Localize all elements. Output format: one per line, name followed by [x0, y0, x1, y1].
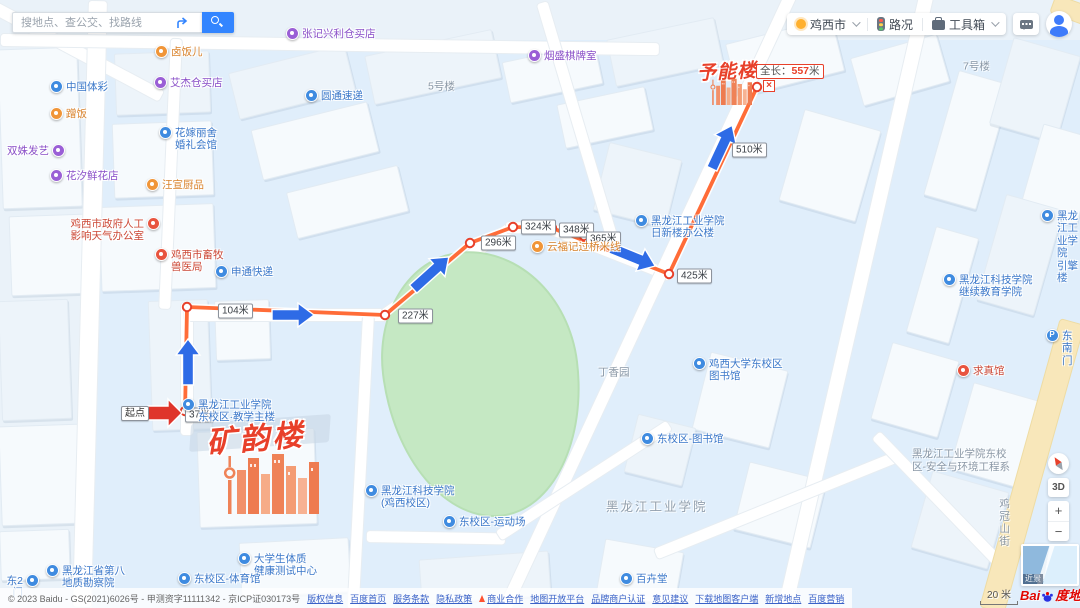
- poi-pin-icon: [155, 248, 168, 261]
- chevron-down-icon: [991, 18, 999, 26]
- flame-icon: [479, 595, 485, 602]
- poi-label: 东校区-运动场: [459, 515, 526, 528]
- poi-marker[interactable]: 双姝发艺: [7, 144, 65, 157]
- poi-label: 东校区-图书馆: [657, 432, 724, 445]
- poi-label: 花嫁丽舍 婚礼会馆: [175, 126, 217, 152]
- poi-label: 东校区-体育馆: [194, 572, 261, 585]
- destination-skyline-illustration: [703, 77, 759, 105]
- poi-pin-icon: [528, 49, 541, 62]
- feedback-button[interactable]: [1013, 13, 1039, 35]
- poi-marker[interactable]: 张记兴利仓买店: [286, 27, 376, 40]
- zoom-controls: + −: [1048, 501, 1069, 541]
- footer-link[interactable]: 百度首页: [350, 592, 386, 605]
- 3d-toggle[interactable]: 3D: [1048, 478, 1069, 497]
- zoom-in-button[interactable]: +: [1048, 501, 1069, 522]
- poi-label: 求真馆: [973, 364, 1005, 377]
- footer-link[interactable]: 版权信息: [307, 592, 343, 605]
- city-label: 鸡西市: [810, 16, 846, 33]
- poi-pin-icon: [215, 265, 228, 278]
- poi-marker[interactable]: 黑龙江工业学院 引擎楼: [1041, 209, 1080, 284]
- road: [183, 308, 388, 322]
- poi-marker[interactable]: 黑龙江科技学院 继续教育学院: [943, 273, 1033, 299]
- poi-label: 鸡西市政府人工 影响天气办公室: [71, 217, 145, 243]
- poi-marker[interactable]: 东校区-运动场: [443, 515, 526, 528]
- compass-control[interactable]: [1048, 453, 1069, 474]
- poi-marker[interactable]: 卤饭儿: [155, 45, 203, 58]
- route-distance-label: 425米: [677, 269, 712, 284]
- search-input[interactable]: [12, 12, 202, 33]
- poi-label: 大学生体质 健康测试中心: [254, 552, 317, 578]
- weather-icon: [796, 19, 806, 29]
- traffic-toggle[interactable]: 路况: [868, 13, 922, 35]
- total-prefix: 全长：: [760, 65, 792, 77]
- footer-link[interactable]: 服务条款: [393, 592, 429, 605]
- poi-label: 云福记过桥米线: [547, 240, 621, 253]
- poi-label: 申通快递: [231, 265, 273, 278]
- poi-label: 黑龙江省第八 地质勘察院: [62, 564, 125, 590]
- poi-marker[interactable]: 鸡西市政府人工 影响天气办公室: [71, 217, 161, 243]
- route-distance-label: 296米: [481, 236, 516, 251]
- poi-label: 东南门: [1062, 329, 1080, 367]
- poi-pin-icon: [531, 240, 544, 253]
- poi-label: 花汐鲜花店: [66, 169, 119, 182]
- chevron-down-icon: [852, 18, 860, 26]
- poi-label: 黑龙江科技学院 (鸡西校区): [381, 484, 455, 510]
- logo-bai: Bai: [1020, 588, 1040, 604]
- poi-pin-icon: [154, 76, 167, 89]
- route-distance-label: 227米: [398, 309, 433, 324]
- user-avatar[interactable]: [1046, 11, 1072, 37]
- poi-label: 卤饭儿: [171, 45, 203, 58]
- poi-label: 艾杰仓买店: [170, 76, 223, 89]
- poi-marker[interactable]: 百卉堂: [620, 572, 668, 585]
- poi-marker[interactable]: 花汐鲜花店: [50, 169, 119, 182]
- road: [366, 530, 506, 545]
- poi-marker[interactable]: 东校区-体育馆: [178, 572, 261, 585]
- map-canvas[interactable]: 矿韵楼 予能楼 全长：557米 × 起点 鸡西市 路况: [0, 0, 1080, 608]
- poi-marker[interactable]: 求真馆: [957, 364, 1005, 377]
- poi-pin-icon: [943, 273, 956, 286]
- poi-pin-icon: [178, 572, 191, 585]
- toolbar-pill: 鸡西市 路况 工具箱: [787, 13, 1006, 35]
- poi-label: 黑龙江工业学院 引擎楼: [1057, 209, 1080, 284]
- route-total-badge: 全长：557米: [756, 64, 824, 79]
- person-icon: [1054, 15, 1064, 25]
- poi-label: 中国体彩: [66, 80, 108, 93]
- poi-pin-icon: [50, 107, 63, 120]
- area-label: 黑龙江工业学院: [606, 500, 708, 516]
- poi-pin-icon: [52, 144, 65, 157]
- minimap-label: 近景: [1023, 574, 1043, 584]
- origin-skyline-illustration: [221, 450, 321, 514]
- minimap-thumbnail[interactable]: 近景: [1021, 544, 1079, 586]
- search-bar: [12, 12, 234, 33]
- building-block: [0, 299, 72, 421]
- poi-marker[interactable]: 鸡西大学东校区 图书馆: [693, 357, 783, 383]
- scale-line: [980, 601, 1018, 605]
- area-label: 黑龙江工业学院东校 区-安全与环境工程系: [912, 448, 1010, 474]
- search-button[interactable]: [202, 12, 234, 33]
- poi-marker[interactable]: 云福记过桥米线: [531, 240, 621, 253]
- building-block: [0, 47, 83, 210]
- poi-pin-icon: [305, 89, 318, 102]
- route-start-badge: 起点: [121, 406, 149, 421]
- logo-suffix: 度地图: [1055, 588, 1080, 604]
- poi-pin-icon: [620, 572, 633, 585]
- poi-marker[interactable]: 东校区-图书馆: [641, 432, 724, 445]
- copyright-text: © 2023 Baidu - GS(2021)6026号 - 甲测资字11111…: [8, 592, 300, 605]
- route-distance-label: 510米: [732, 143, 767, 158]
- toolbox-label: 工具箱: [949, 16, 985, 33]
- poi-pin-icon: [46, 564, 59, 577]
- poi-pin-icon: [159, 126, 172, 139]
- poi-marker[interactable]: 蹭饭: [50, 107, 87, 120]
- poi-pin-icon: [50, 80, 63, 93]
- poi-label: 烟盛棋牌室: [544, 49, 597, 62]
- close-icon[interactable]: ×: [763, 80, 775, 92]
- search-icon: [211, 16, 219, 24]
- poi-label: 蹭饭: [66, 107, 87, 120]
- poi-pin-icon: [635, 214, 648, 227]
- poi-pin-icon: [443, 515, 456, 528]
- total-value: 557: [792, 65, 810, 77]
- poi-marker[interactable]: P东南门: [1046, 329, 1080, 367]
- poi-pin-icon: [693, 357, 706, 370]
- poi-marker[interactable]: 圆通速递: [305, 89, 363, 102]
- paw-icon: [1041, 590, 1054, 603]
- poi-marker[interactable]: 汪宣厨品: [146, 178, 204, 191]
- route-distance-label: 324米: [521, 220, 556, 235]
- poi-pin-icon: [147, 217, 160, 230]
- building-block: [0, 424, 82, 527]
- poi-marker[interactable]: 黑龙江省第八 地质勘察院: [46, 564, 125, 590]
- scale-label: 20 米: [987, 590, 1011, 601]
- poi-marker[interactable]: 花嫁丽舍 婚礼会馆: [159, 126, 217, 152]
- toolbar: 鸡西市 路况 工具箱: [787, 11, 1072, 37]
- poi-label: 黑龙江科技学院 继续教育学院: [959, 273, 1033, 299]
- poi-marker[interactable]: 烟盛棋牌室: [528, 49, 597, 62]
- poi-marker[interactable]: 艾杰仓买店: [154, 76, 223, 89]
- poi-label: 双姝发艺: [7, 144, 49, 157]
- route-distance-label: 104米: [218, 304, 253, 319]
- toolbox-menu[interactable]: 工具箱: [923, 13, 1006, 35]
- footer-link[interactable]: 隐私政策: [436, 592, 472, 605]
- poi-pin-icon: [957, 364, 970, 377]
- poi-pin-icon: [1041, 209, 1054, 222]
- total-unit: 米: [809, 65, 820, 77]
- message-icon: [1020, 20, 1033, 29]
- poi-label: 圆通速递: [321, 89, 363, 102]
- poi-pin-icon: [26, 574, 39, 587]
- footer-link[interactable]: 商业合作: [479, 592, 523, 605]
- poi-marker[interactable]: 黑龙江工业学院 日新楼办公楼: [635, 214, 725, 240]
- traffic-light-icon: [877, 17, 885, 31]
- toolbox-icon: [932, 20, 945, 30]
- footer-link[interactable]: 地图开放平台: [530, 592, 584, 605]
- directions-icon[interactable]: [176, 16, 190, 30]
- scale-bar: 20 米: [980, 586, 1018, 605]
- poi-marker[interactable]: 中国体彩: [50, 80, 108, 93]
- zoom-out-button[interactable]: −: [1048, 522, 1069, 542]
- area-label: 7号楼: [963, 60, 990, 73]
- footer-link[interactable]: 意见建议: [652, 592, 688, 605]
- area-label: 鸡冠山街: [997, 498, 1010, 548]
- poi-pin-icon: [155, 45, 168, 58]
- area-label: 丁香园: [598, 366, 630, 379]
- gate-icon: P: [1046, 329, 1059, 342]
- footer-link[interactable]: 百度营销: [808, 592, 844, 605]
- poi-pin-icon: [238, 552, 251, 565]
- traffic-label: 路况: [889, 16, 913, 33]
- footer-link[interactable]: 品牌商户认证: [591, 592, 645, 605]
- poi-pin-icon: [286, 27, 299, 40]
- footer-link[interactable]: 新增地点: [765, 592, 801, 605]
- footer-link[interactable]: 下载地图客户端: [695, 592, 758, 605]
- poi-pin-icon: [50, 169, 63, 182]
- poi-marker[interactable]: 鸡西市畜牧 兽医局: [155, 248, 224, 274]
- poi-pin-icon: [182, 398, 195, 411]
- poi-label: 鸡西大学东校区 图书馆: [709, 357, 783, 383]
- poi-pin-icon: [641, 432, 654, 445]
- poi-marker[interactable]: 黑龙江科技学院 (鸡西校区): [365, 484, 455, 510]
- poi-label: 黑龙江工业学院 日新楼办公楼: [651, 214, 725, 240]
- poi-label: 汪宣厨品: [162, 178, 204, 191]
- footer-bar: © 2023 Baidu - GS(2021)6026号 - 甲测资字11111…: [0, 588, 852, 608]
- poi-pin-icon: [365, 484, 378, 497]
- area-label: 5号楼: [428, 80, 455, 93]
- city-selector[interactable]: 鸡西市: [787, 13, 867, 35]
- poi-pin-icon: [146, 178, 159, 191]
- poi-label: 张记兴利仓买店: [302, 27, 376, 40]
- baidu-logo[interactable]: Bai 度地图: [1020, 588, 1080, 604]
- poi-label: 百卉堂: [636, 572, 668, 585]
- poi-marker[interactable]: 申通快递: [215, 265, 273, 278]
